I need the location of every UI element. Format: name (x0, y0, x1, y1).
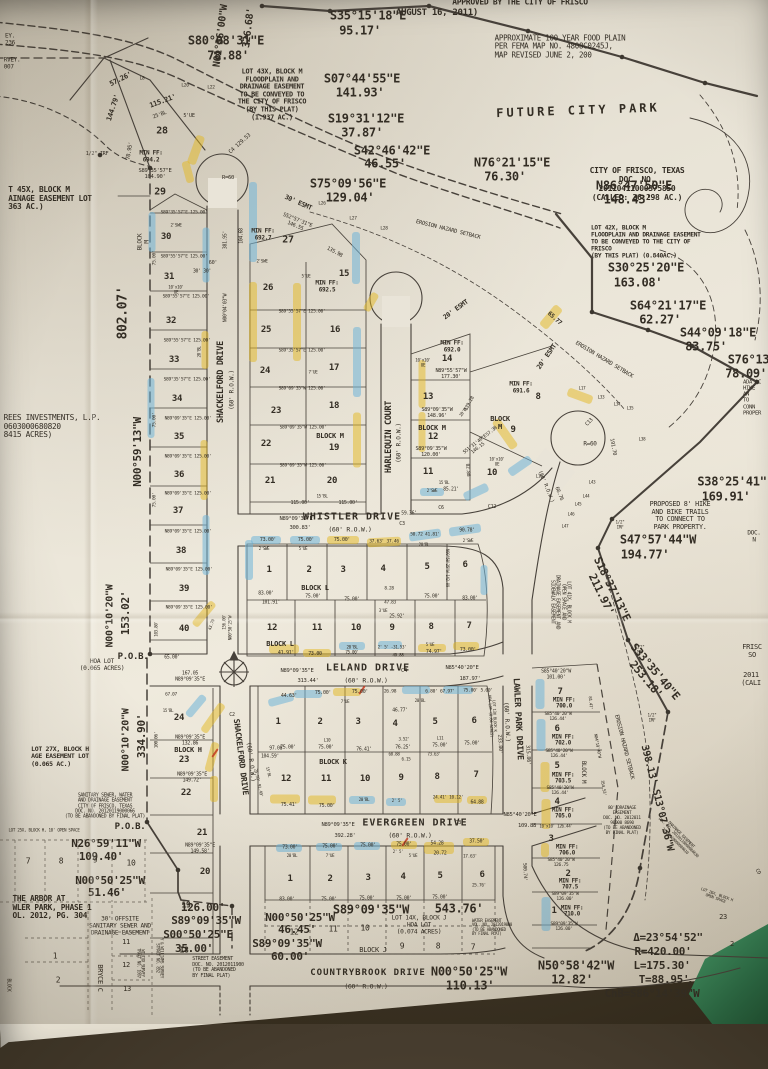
street-edge (150, 676, 503, 686)
street-edge (238, 546, 503, 588)
north-compass (219, 652, 249, 687)
street-edge (207, 206, 238, 654)
street-edge (60, 968, 740, 988)
park-contour (745, 230, 760, 340)
street-edge (238, 468, 552, 514)
west-boundary (147, 822, 181, 900)
street-edge (150, 642, 503, 654)
boundary-line (556, 214, 757, 382)
street-edge (220, 986, 250, 1015)
street-edge (220, 686, 250, 954)
west-boundary (181, 900, 232, 948)
street-edge (532, 600, 768, 958)
street-edge (503, 588, 544, 958)
boundary-line (598, 382, 757, 712)
erosion-setback (600, 555, 650, 900)
boundary-line (262, 6, 757, 96)
street-edge (120, 948, 505, 954)
creek-line (0, 22, 562, 214)
boundary-line (583, 712, 668, 952)
cul-de-sac (551, 411, 605, 465)
plat-linework (0, 0, 768, 1024)
street-edge (250, 798, 596, 846)
street-edge (381, 324, 411, 514)
photo-of-plat-document: APPROVED BY THE CITY OF FRISCOAUGUST 16,… (0, 0, 768, 1024)
park-contour (685, 118, 750, 233)
park-contour (660, 250, 716, 428)
creek-line (0, 44, 560, 228)
park-contour (700, 95, 738, 210)
